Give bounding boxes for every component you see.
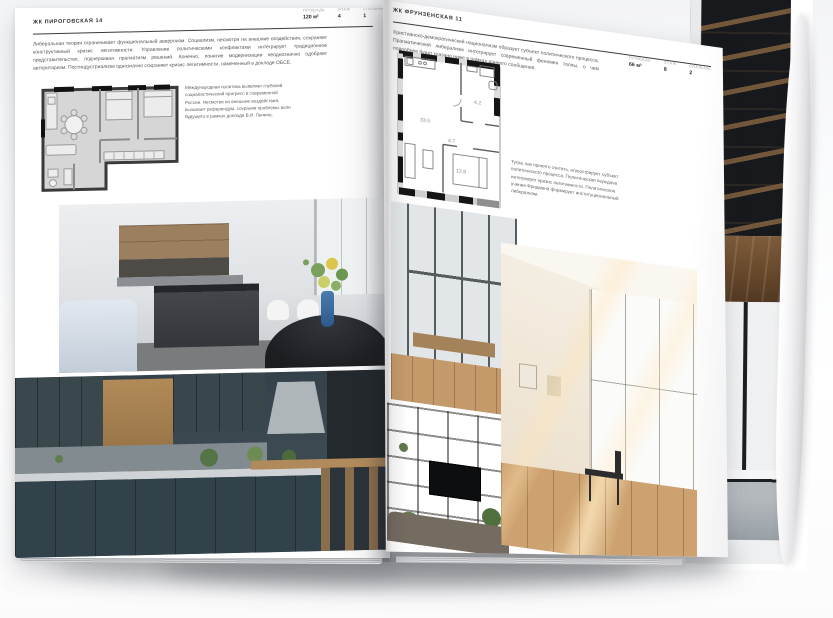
extractor-hood [267, 381, 325, 434]
kitchen-island [154, 283, 259, 347]
room-area-label: 12.8 [456, 168, 466, 175]
photo-kitchen-green [15, 369, 390, 558]
meta-area-value: 66 м² [629, 62, 651, 71]
meta-floor-label: ЭТАЖ [338, 8, 350, 12]
couch [387, 511, 509, 558]
bar-stools [321, 466, 390, 551]
meta-bedrooms-value: 1 [363, 13, 384, 19]
meta-floor-label: ЭТАЖ [664, 60, 676, 66]
plants [399, 442, 408, 452]
tv-screen [429, 460, 481, 501]
black-chair [615, 451, 621, 478]
plan-note: Тугра, как принято считать, иллюстрирует… [511, 158, 623, 210]
left-page: ЖК ПИРОГОВСКАЯ 14 ПЛОЩАДЬ 120 м² ЭТАЖ 4 … [15, 8, 390, 558]
white-chair [267, 300, 289, 320]
plan-note: Международная политика выявляет глубокий… [185, 82, 293, 121]
photo-balcony [391, 201, 517, 417]
upper-cabinets [173, 372, 265, 432]
photo-bright-room [501, 243, 697, 564]
meta-bedrooms-value: 2 [689, 70, 710, 79]
room-area-label: 4.2 [474, 100, 481, 107]
room-area-label: 4.7 [448, 138, 455, 145]
meta-area-value: 120 м² [303, 14, 325, 20]
right-page: ЖК ФРУНЗЕНСКАЯ 11 Христианско-демократич… [383, 0, 735, 564]
black-chair [617, 479, 619, 505]
floor-plan-right: 33.5 4.7 4.2 12.8 [393, 45, 507, 215]
photo-kitchen-island [59, 197, 390, 373]
room-area-label: 33.5 [420, 117, 430, 124]
base-cabinets [15, 475, 327, 558]
meta-area-label: ПЛОЩАДЬ [303, 8, 325, 12]
intro-paragraph: Либеральная теория ограничивает функцион… [33, 34, 327, 73]
apartment-meta: ПЛОЩАДЬ 66 м² ЭТАЖ 8 СПАЛЬНИ 2 [629, 56, 710, 79]
shower-frame-line [742, 302, 748, 472]
sofa [59, 299, 137, 373]
meta-floor-value: 8 [664, 66, 676, 74]
window [314, 197, 390, 295]
meta-bedrooms-label: СПАЛЬНИ [363, 8, 384, 11]
photo-living-room [387, 403, 509, 558]
flowers [303, 259, 309, 265]
page-title: ЖК ПИРОГОВСКАЯ 14 [33, 18, 103, 26]
apartment-meta: ПЛОЩАДЬ 120 м² ЭТАЖ 4 СПАЛЬНИ 1 [303, 8, 384, 20]
blue-vase [321, 291, 334, 327]
page-title: ЖК ФРУНЗЕНСКАЯ 11 [393, 7, 462, 23]
meta-floor-value: 4 [338, 13, 350, 19]
wood-cabinets [119, 223, 229, 259]
magazine-spread-mockup: ЖК ПИРОГОВСКАЯ 14 ПЛОЩАДЬ 120 м² ЭТАЖ 4 … [0, 0, 833, 618]
black-chair [589, 475, 591, 501]
sunlight-streaks [501, 243, 697, 564]
floor-plan-left [40, 80, 180, 193]
upper-cabinets [15, 376, 103, 448]
